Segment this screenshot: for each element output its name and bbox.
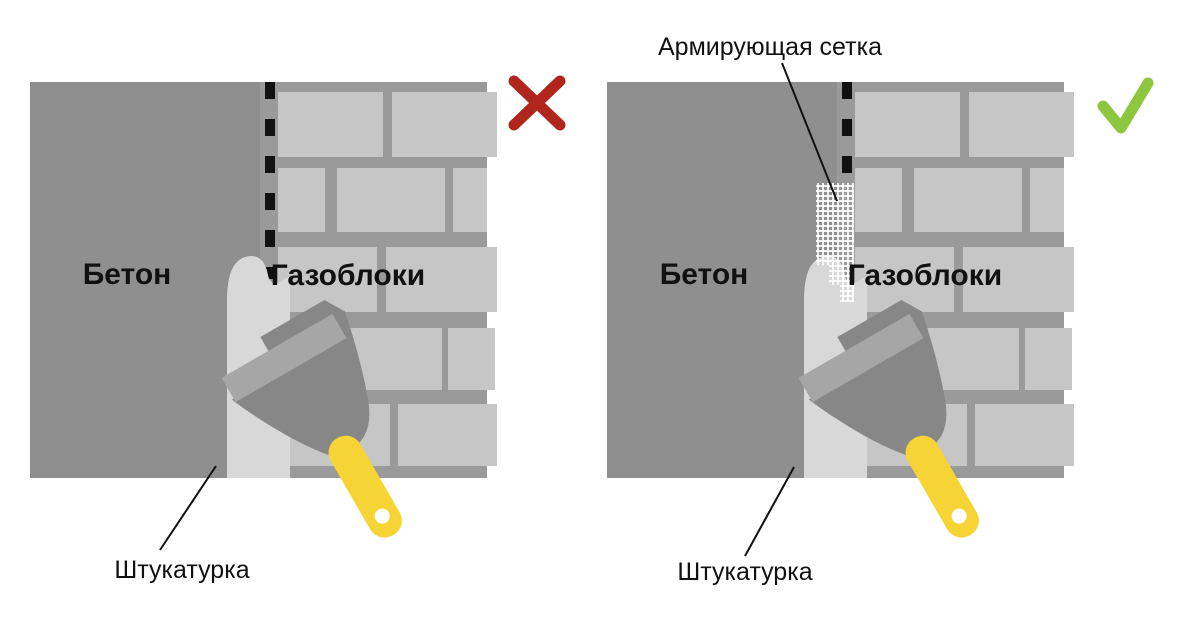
brick [855,92,960,157]
gas-blocks-label: Газоблоки [848,259,1002,292]
brick [969,92,1074,157]
plaster-label: Штукатурка [677,558,812,586]
brick [398,404,497,466]
brick [1025,328,1072,390]
plastering-comparison-diagram: Бетон Газоблоки Штукатурка [0,0,1190,628]
panel-without-mesh: Бетон Газоблоки Штукатурка [0,0,595,628]
concrete-label: Бетон [83,258,172,291]
panel-with-mesh: Бетон Газоблоки Армирующая сетка Штукату… [577,0,1172,628]
plaster-label: Штукатурка [114,556,249,584]
brick [1030,168,1064,232]
brick [278,168,325,232]
brick [392,92,497,157]
check-icon [1103,83,1148,128]
gas-blocks-label: Газоблоки [271,259,425,292]
brick [278,92,383,157]
brick [453,168,487,232]
brick [855,168,902,232]
cross-icon [514,81,560,125]
brick [337,168,445,232]
brick [975,404,1074,466]
concrete-label: Бетон [660,258,749,291]
plaster-leader-line [160,466,216,550]
brick [448,328,495,390]
mesh-label: Армирующая сетка [658,33,882,61]
brick [914,168,1022,232]
plaster-leader-line [745,467,794,556]
